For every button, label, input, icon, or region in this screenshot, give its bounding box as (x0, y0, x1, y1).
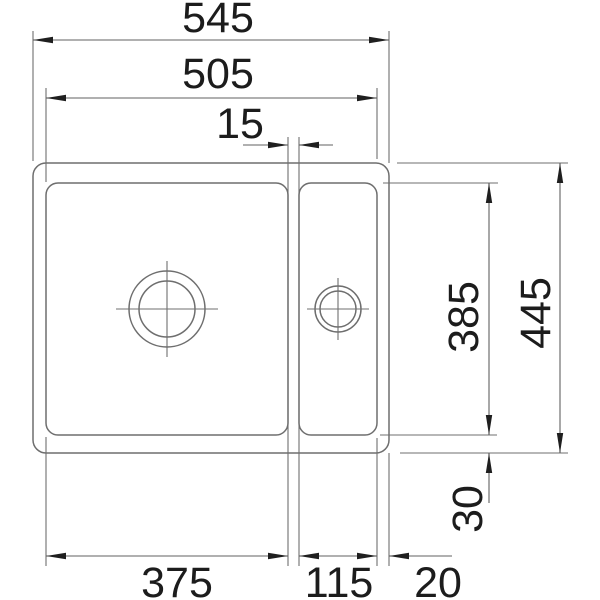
dim-label-total-depth: 445 (512, 277, 560, 349)
dim-label-bottom-rim-offset: 30 (444, 485, 492, 533)
dim-label-inner-depth: 385 (440, 281, 488, 353)
dim-label-total-width: 545 (182, 0, 254, 42)
dim-label-inner-width: 505 (182, 50, 254, 98)
main-drain (116, 261, 218, 357)
drawing-canvas: 545 505 15 385 445 30 375 115 20 (0, 0, 600, 600)
small-drain (307, 278, 369, 340)
technical-drawing: 545 505 15 385 445 30 375 115 20 (0, 0, 600, 600)
dim-label-right-rim-offset: 20 (414, 559, 462, 600)
sink-body (33, 163, 389, 453)
dim-label-main-bowl-width: 375 (141, 559, 213, 600)
sink-rim-outline (33, 163, 389, 453)
dim-label-divider-width: 15 (216, 100, 264, 148)
dim-label-small-bowl-width: 115 (305, 559, 374, 600)
